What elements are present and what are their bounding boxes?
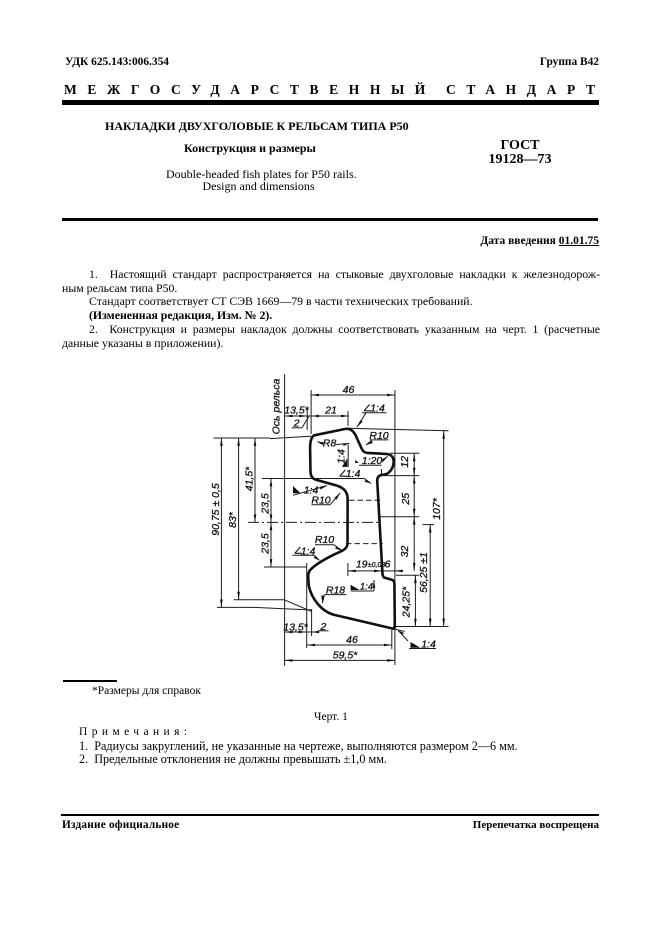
svg-text:R10: R10	[369, 430, 388, 442]
svg-text:13,5*: 13,5*	[284, 405, 309, 417]
svg-text:1:4: 1:4	[301, 545, 316, 557]
svg-text:1:4: 1:4	[421, 639, 436, 651]
svg-text:107*: 107*	[431, 497, 443, 520]
svg-text:R10: R10	[315, 534, 334, 546]
svg-text:1:4: 1:4	[370, 403, 385, 415]
svg-text:19: 19	[356, 559, 368, 571]
svg-text:46: 46	[346, 634, 358, 646]
svg-text:1:4: 1:4	[346, 468, 361, 480]
svg-text:24,25*: 24,25*	[401, 586, 413, 618]
svg-text:12: 12	[399, 456, 411, 468]
svg-text:21: 21	[324, 405, 337, 417]
svg-text:Ось рельса: Ось рельса	[270, 378, 282, 434]
svg-text:90,75 ± 0,5: 90,75 ± 0,5	[210, 483, 222, 536]
svg-text:41,5*: 41,5*	[244, 466, 256, 491]
svg-text:R18: R18	[326, 585, 345, 597]
svg-text:2: 2	[319, 621, 326, 633]
svg-text:R8: R8	[323, 438, 337, 450]
svg-text:13,5*: 13,5*	[283, 622, 308, 634]
svg-text:83*: 83*	[227, 511, 239, 528]
svg-text:25: 25	[400, 493, 412, 506]
svg-text:23,5: 23,5	[259, 533, 271, 555]
svg-text:2: 2	[293, 418, 300, 430]
svg-text:6: 6	[385, 559, 391, 571]
svg-text:±0,08: ±0,08	[368, 562, 386, 569]
svg-text:59,5*: 59,5*	[333, 649, 358, 661]
svg-text:56,25 ±1: 56,25 ±1	[418, 552, 430, 593]
svg-text:R10: R10	[311, 494, 330, 506]
svg-text:1:20: 1:20	[362, 455, 383, 467]
svg-text:46: 46	[343, 384, 355, 396]
svg-text:1:4: 1:4	[360, 582, 373, 593]
svg-text:32: 32	[399, 546, 411, 558]
svg-text:23,5: 23,5	[259, 493, 271, 515]
